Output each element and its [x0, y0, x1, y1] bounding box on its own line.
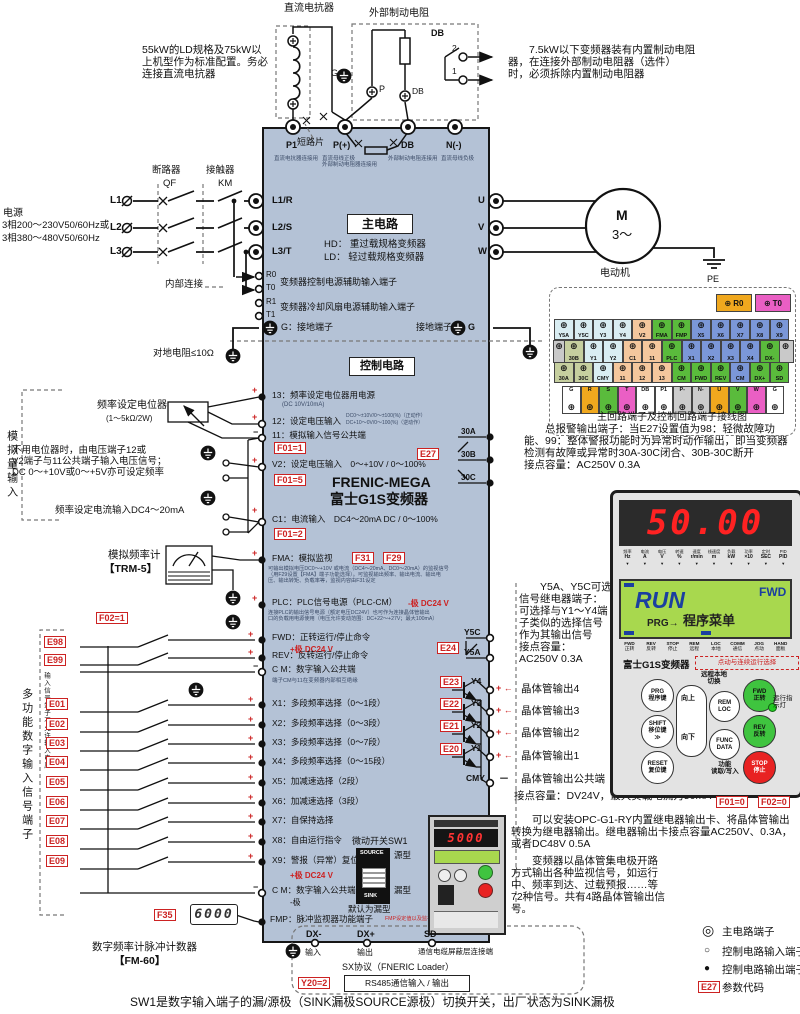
hd-note: HD： 重过载规格变频器 — [324, 240, 426, 251]
svg-text:−: − — [253, 661, 258, 671]
output-terminal-icon — [258, 838, 265, 845]
input-terminal-icon — [487, 635, 494, 642]
svg-text:+: + — [252, 548, 257, 558]
terminal-y3: Y3 — [471, 699, 481, 709]
shift-button[interactable]: SHIFT 移位键 ≫ — [641, 715, 674, 748]
sw1-sink-type: 漏型 — [394, 886, 411, 896]
code-e98: E98 — [44, 636, 66, 648]
terminal-12-sub2: DC+10～0V/0～100(%)（逆动作） — [346, 421, 423, 427]
terminal-30a: 30A — [461, 427, 476, 436]
keypad-unit: 线速度m▼ — [706, 549, 723, 566]
code-e01: E01 — [46, 698, 68, 710]
code-f02-1: F02=1 — [96, 612, 128, 624]
output-terminal-icon — [258, 759, 265, 766]
cmy-polarity: － — [499, 774, 509, 786]
km-name: 接触器 — [206, 166, 235, 177]
digital-input-label: X6：加减速选择（3段） — [272, 797, 364, 807]
terminal-cell: ⊕30C — [574, 362, 594, 383]
sd-shield-label: 通信电缆屏蔽层连接端 — [418, 948, 493, 957]
keypad-status-item: COMM通信 — [727, 641, 748, 653]
code-e24: E24 — [437, 642, 459, 654]
main-terminal-icon — [249, 245, 263, 259]
terminal-cmy: CMY — [466, 774, 485, 784]
strip-r0: ⊕R0 — [716, 294, 752, 312]
input-terminal-icon — [487, 655, 494, 662]
input-terminal-icon — [364, 940, 371, 947]
terminal-cell: ⊕CMY — [593, 362, 613, 383]
rs485-label: RS485通信输入 / 输出 — [344, 975, 470, 992]
svg-text:−: − — [253, 882, 258, 892]
terminal-dx-minus: DX- — [306, 929, 322, 939]
fma-sub: 可输出模拟电压DC0～+10V 或电流（DC4～20mA、DC0～20mA）的监… — [268, 567, 449, 585]
polarity-arrow: + ← — [496, 705, 513, 715]
pplus-caption: 直流母线正极 外部制动电阻器连接用 — [322, 156, 377, 169]
terminal-cell: N-⊕ — [692, 386, 711, 414]
terminal-cell: ⊕Y4 — [613, 319, 633, 340]
terminal-cell: ⊕X3 — [721, 340, 741, 363]
input-terminal-icon — [487, 754, 494, 761]
p1-caption: 直流电抗器连接用 — [274, 156, 318, 162]
legend-input-label: 控制电路输入端子 — [722, 946, 800, 958]
digital-input-label: X5：加减速选择（2段） — [272, 777, 364, 787]
terminal-y2: Y2 — [471, 721, 481, 731]
terminal-cell: S⊕ — [599, 386, 618, 414]
output-terminal-icon — [258, 918, 265, 925]
code-e27: E27 — [417, 448, 439, 460]
svg-text:+: + — [248, 772, 253, 782]
updown-control[interactable]: 向上 向下 — [676, 685, 707, 757]
terminal-cell: ⊕X9 — [770, 319, 790, 340]
terminal-cell: ⊕X8 — [750, 319, 770, 340]
prg-button[interactable]: PRG 程序键 — [641, 679, 674, 712]
sw1-source-label: SOURCE — [360, 850, 384, 856]
code-f01-1: F01=1 — [274, 442, 306, 454]
code-f01-2: F01=2 — [274, 528, 306, 540]
pe-label: PE — [707, 274, 719, 284]
terminal-r0: R0 — [266, 270, 276, 279]
mini-display: 5000 — [434, 829, 498, 847]
remloc-button[interactable]: REM LOC — [709, 691, 740, 722]
output-terminal-icon — [258, 721, 265, 728]
earth-ground-icon — [201, 446, 216, 461]
down-button[interactable]: 向下 — [681, 734, 695, 742]
keypad-unit: 定时SEC▼ — [757, 549, 774, 566]
input-terminal-icon — [259, 421, 266, 428]
dx-in-label: 输入 — [305, 948, 321, 957]
terminal-cell: R⊕ — [581, 386, 600, 414]
output-terminal-icon — [258, 654, 265, 661]
terminal-cell: ⊕REV — [711, 362, 731, 383]
ground-right-g: G — [468, 322, 475, 332]
keypad-unit: 电流A▼ — [636, 549, 653, 566]
terminal-13-label: 13：频率设定电位器用电源 — [272, 391, 375, 401]
earth-ground-icon — [201, 491, 216, 506]
source-connection-icon — [122, 247, 132, 257]
screw-terminal-icon — [367, 87, 377, 97]
keypad-lcd: RUN FWD PRG→ 程序菜单 — [619, 579, 792, 639]
terminal-11-label: 11：模拟输入信号公共端 — [272, 431, 366, 441]
terminal-cell: ⊕X7 — [730, 319, 750, 340]
svg-text:+: + — [252, 455, 257, 465]
input-terminal-icon: ○ — [704, 945, 710, 957]
terminal-cell: ⊕PLC — [662, 340, 682, 363]
motor-m: M — [616, 207, 628, 223]
sx-protocol-label: SX协议（FNERIC Loader） — [342, 962, 454, 972]
output-terminal-icon — [486, 479, 493, 486]
keypad-status-item: LOC本地 — [705, 641, 726, 653]
keypad-unit: 负载kW▼ — [723, 549, 740, 566]
svg-text:+: + — [252, 412, 257, 422]
terminal-cell: T⊕ — [618, 386, 637, 414]
svg-text:+: + — [248, 811, 253, 821]
input-terminal-icon — [259, 890, 266, 897]
code-e06: E06 — [46, 796, 68, 808]
keypad-unit: 频率Hz▼ — [619, 549, 636, 566]
earth-ground-icon — [226, 349, 241, 364]
code-f01-5: F01=5 — [274, 474, 306, 486]
terminal-cell: P-⊕ — [673, 386, 692, 414]
svg-text:+: + — [252, 593, 257, 603]
output-terminal-icon — [258, 779, 265, 786]
terminal-cell: V⊕ — [729, 386, 748, 414]
input-terminal-icon — [429, 940, 436, 947]
meter-label: 模拟频率计 — [108, 549, 161, 561]
code-icon: E27 — [698, 981, 720, 993]
main-terminal-icon — [489, 194, 503, 208]
terminal-u: U — [478, 196, 485, 207]
sw1-source-type: 源型 — [394, 851, 411, 861]
stop-button[interactable]: STOP 停止 — [743, 751, 776, 784]
input-terminal-icon — [259, 435, 266, 442]
terminal-cell: DB⊕ — [636, 386, 655, 414]
input-terminal-icon — [312, 940, 319, 947]
ext-brake-label: 外部制动电阻 — [369, 8, 429, 20]
terminal-nminus: N(-) — [446, 140, 462, 150]
lcd-fwd: FWD — [759, 586, 786, 600]
power-title: 电源 — [3, 208, 23, 220]
terminal-cell: W⊕ — [747, 386, 766, 414]
terminal-cell: ⊕DX+ — [750, 362, 770, 383]
code-e09: E09 — [46, 855, 68, 867]
footer-note: SW1是数字输入端子的漏/源极（SINK漏极SOURCE源极）切换开关，出厂状态… — [130, 996, 615, 1010]
terminal-cm-label: C M：数字输入公共端 — [272, 665, 356, 675]
code-e23: E23 — [440, 676, 462, 688]
terminal-30b: 30B — [461, 450, 476, 459]
strip-t0: ⊕T0 — [755, 294, 791, 312]
km-label[interactable]: KM — [218, 179, 232, 190]
code-f01-0: F01=0 — [716, 796, 748, 808]
digital-input-label: X4：多段频率选择（0～15段） — [272, 757, 390, 767]
svg-text:−: − — [253, 427, 258, 437]
code-e05: E05 — [46, 776, 68, 788]
terminal-db: DB — [401, 140, 414, 150]
power-spec2: 3相380～480V50/60Hz — [2, 234, 100, 245]
lcd-run: RUN — [635, 587, 685, 613]
open-collector-note: 变频器以晶体管集电极开路 方式输出各种监视信号，如运行 中、频率到达、过载预报…… — [511, 855, 665, 915]
sw1-switch[interactable]: SOURCE SINK — [356, 848, 390, 904]
terminal-cell: ⊕CM — [672, 362, 692, 383]
svg-text:+: + — [252, 505, 257, 515]
earth-ground-icon — [523, 345, 538, 360]
input-terminal-icon — [487, 731, 494, 738]
digital-input-label: X7：自保持选择 — [272, 816, 333, 826]
code-e07: E07 — [46, 815, 68, 827]
dc-reactor-note: 55kW的LD规格及75kW以 上机型作为标准配置。务必 连接直流电抗器 — [142, 44, 268, 80]
source-connection-icon — [122, 223, 132, 233]
brake-db-label: DB — [412, 87, 424, 97]
funcdata-label: 功能 读取/写入 — [711, 761, 739, 776]
terminal-cell: ⊕X5 — [691, 319, 711, 340]
transistor-output-label: 晶体管输出2 — [521, 727, 579, 739]
svg-text:+: + — [248, 752, 253, 762]
terminal-y5c: Y5C — [464, 628, 481, 638]
db-contact-2[interactable]: 2 — [452, 44, 457, 54]
counter-label: 数字频率计脉冲计数器 — [92, 941, 197, 953]
terminal-cell: ⊕Y2 — [603, 340, 623, 363]
keypad-status-item: STOP停止 — [662, 641, 683, 653]
terminal-rev-label: REV：反转运行/停止命令 — [272, 651, 368, 661]
up-button[interactable]: 向上 — [681, 695, 695, 703]
svg-text:+: + — [248, 831, 253, 841]
terminal-cell: P1⊕ — [655, 386, 674, 414]
terminal-cell: ⊕X6 — [711, 319, 731, 340]
code-e20: E20 — [440, 743, 462, 755]
terminal-plc-label: PLC：PLC信号电源（PLC-CM） — [272, 598, 397, 608]
output-terminal-icon — [486, 433, 493, 440]
brand-line1: FRENIC-MEGA — [332, 474, 431, 490]
terminal-l1r: L1/R — [272, 196, 293, 207]
earth-ground-icon — [337, 69, 352, 84]
polarity-arrow: + ← — [496, 727, 513, 737]
code-f31: F31 — [352, 552, 374, 564]
output-terminal-icon — [258, 818, 265, 825]
main-terminal-icon — [489, 221, 503, 235]
power-spec1: 3相200～230V50/60Hz或 — [2, 221, 109, 232]
output-terminal-icon — [258, 556, 265, 563]
opc-note: 可以安装OPC-G1-RY内置继电器输出卡、将晶体管输出 转换为继电器输出。继电… — [511, 814, 792, 850]
terminal-cell: ⊕DX- — [760, 340, 780, 363]
terminal-c1-label: C1：电流输入 DC4～20mA DC / 0～100% — [272, 515, 438, 525]
qf-label[interactable]: QF — [163, 179, 176, 190]
output-terminal-icon — [258, 636, 265, 643]
terminal-cell: G⊕ — [766, 386, 785, 414]
terminal-12-sub1: DC0～±10V/0～±100(%)（正动作） — [346, 414, 426, 420]
screw-terminal-icon — [288, 99, 298, 109]
input-terminal-icon — [256, 273, 263, 280]
svg-text:+: + — [248, 851, 253, 861]
keypad-panel: 50.00 频率Hz▼电流A▼电压V▼转速%▼速度r/min▼线速度m▼负载kW… — [610, 490, 800, 798]
lcd-prg: PRG→ — [647, 618, 679, 630]
keypad-status-item: REM远程 — [684, 641, 705, 653]
main-terminal-icon — [249, 194, 263, 208]
brake-p-label: P — [379, 84, 385, 94]
sw1-slider[interactable] — [362, 868, 386, 888]
sw1-default: 默认为漏型 — [348, 905, 391, 915]
counter-model: 【FM-60】 — [114, 955, 165, 967]
code-f02-0: F02=0 — [758, 796, 790, 808]
motor-phase: 3～ — [612, 228, 632, 243]
input-terminal-icon — [256, 313, 263, 320]
code-f29: F29 — [383, 552, 405, 564]
input-terminal-icon — [487, 687, 494, 694]
terminal-fmp-label: FMP：脉冲监视器功能端子 — [270, 915, 373, 925]
main-terminal-icon — [338, 120, 352, 134]
terminal-cell: ⊕FMA — [652, 319, 672, 340]
terminal-t1: T1 — [266, 310, 275, 319]
terminal-y1: Y1 — [471, 744, 481, 754]
screw-terminal-icon — [400, 91, 410, 101]
source-connection-icon — [122, 196, 132, 206]
ground-left-label: G：接地端子 — [281, 322, 333, 332]
brake-note: 7.5kW以下变频器装有内置制动电阻 器，在连接外部制动电阻器（选件） 时，必须… — [508, 44, 695, 80]
lcd-menu: 程序菜单 — [683, 614, 735, 629]
ground-resistance-label: 对地电阻≤10Ω — [153, 349, 214, 360]
main-terminal-icon — [489, 245, 503, 259]
input-terminal-icon — [487, 709, 494, 716]
plc-sub: 连接PLC的输出信号电源（额定电压DC24V）也可作为连接晶体管输出 口的负载用… — [268, 611, 438, 623]
output-terminal-icon — [258, 393, 265, 400]
ground-right-label: 接地端子 — [416, 322, 452, 332]
output-terminal-icon — [258, 799, 265, 806]
terminal-cell: ⊕FMP — [672, 319, 692, 340]
brake-g-label: G — [331, 68, 338, 78]
meter-model: 【TRM-5】 — [104, 563, 157, 575]
svg-text:+: + — [248, 792, 253, 802]
polarity-arrow: + ← — [496, 750, 513, 760]
code-e21: E21 — [440, 720, 462, 732]
terminal-cell: ⊕Y3 — [593, 319, 613, 340]
terminal-cell: ⊕C1 — [623, 340, 643, 363]
output-terminal-icon — [486, 456, 493, 463]
run-led-label: 运行指 示灯 — [773, 695, 793, 710]
terminal-l2s: L2/S — [272, 223, 292, 234]
ld-note: LD： 轻过载规格变频器 — [324, 253, 424, 264]
terminal-cell: U⊕ — [710, 386, 729, 414]
control-circuit-title: 控制电路 — [349, 357, 415, 376]
keypad-brand: 富士G1S变频器 — [623, 661, 690, 672]
earth-ground-icon — [263, 321, 278, 336]
pot-sub: (1～5kΩ/2W) — [106, 414, 152, 423]
output-terminal-icon: ● — [704, 963, 710, 975]
pulse-display: 6000 — [190, 904, 238, 925]
terminal-cell: ⊕X1 — [682, 340, 702, 363]
code-e99: E99 — [44, 654, 66, 666]
legend-code-label: 参数代码 — [722, 982, 764, 994]
main-terminal-icon — [448, 120, 462, 134]
earth-ground-icon — [189, 683, 204, 698]
legend-main-label: 主电路端子 — [722, 926, 775, 938]
transistor-output-label: 晶体管输出1 — [521, 750, 579, 762]
output-terminal-icon — [258, 740, 265, 747]
no-pot-note: 不用电位器时，由电压端子12或 V2端子与11公共端子输入电压信号； DC 0～… — [12, 446, 166, 479]
terminal-cell: ⊕Y1 — [584, 340, 604, 363]
db-contact-1[interactable]: 1 — [452, 67, 457, 77]
current-input-note: 频率设定电流输入DC4～20mA — [55, 506, 184, 517]
sw1-title: 微动开关SW1 — [352, 836, 408, 846]
input-terminal-icon — [487, 780, 494, 787]
cm2-polarity: -极 — [290, 898, 301, 907]
l3-label: L3 — [110, 246, 122, 258]
code-e08: E08 — [46, 835, 68, 847]
terminal-r1: R1 — [266, 297, 276, 306]
l1-label: L1 — [110, 195, 122, 207]
code-e22: E22 — [440, 698, 462, 710]
terminal-t0: T0 — [266, 283, 275, 292]
funcdata-button[interactable]: FUNC DATA — [709, 729, 740, 760]
nminus-caption: 直流母线负极 — [441, 156, 474, 162]
terminal-p1: P1 — [286, 140, 297, 150]
svg-text:+: + — [248, 694, 253, 704]
code-f35: F35 — [154, 909, 176, 921]
cm-sub: 端子CM与11在变频器内部相互绝缘 — [272, 678, 358, 684]
terminal-l3t: L3/T — [272, 247, 292, 258]
screw-terminal-icon — [288, 36, 298, 46]
keypad-status-item: FWD正转 — [619, 641, 640, 653]
sw1-sink-label: SINK — [364, 893, 377, 899]
fan-power-note: 变频器冷却风扇电源辅助输入端子 — [280, 302, 415, 312]
polarity-arrow: + ← — [496, 683, 513, 693]
terminal-cell: ⊕30A — [554, 362, 574, 383]
terminal-v2-label: V2：设定电压输入 0～+10V / 0～100% — [272, 460, 426, 470]
main-circuit-title: 主电路 — [347, 214, 413, 234]
input-terminal-icon — [256, 286, 263, 293]
terminal-cell: ⊕13 — [652, 362, 672, 383]
keypad-display: 50.00 — [619, 500, 792, 546]
terminal-dx-plus: DX+ — [357, 929, 375, 939]
terminal-cell: ⊕X4 — [740, 340, 760, 363]
motor-label: 电动机 — [600, 268, 630, 280]
terminal-cell: ⊕30B — [564, 340, 584, 363]
cmy-label: 晶体管输出公共端 — [521, 773, 605, 785]
transistor-output-label: 晶体管输出4 — [521, 683, 579, 695]
keypad-units: 频率Hz▼电流A▼电压V▼转速%▼速度r/min▼线速度m▼负载kW▼功率×10… — [619, 549, 792, 575]
main-terminal-icon — [401, 120, 415, 134]
keypad-unit: 功率×10▼ — [740, 549, 757, 566]
terminal-13-sub: (DC 10V/10mA) — [282, 402, 324, 409]
relay-note: Y5A、Y5C可选 信号继电器端子： 可选择与Y1～Y4端 子类似的选择信号 作… — [519, 581, 612, 665]
terminal-v: V — [478, 223, 484, 234]
terminal-12-label: 12：设定电压输入 — [272, 417, 341, 427]
terminal-cell: ⊕FWD — [691, 362, 711, 383]
code-e02: E02 — [46, 718, 68, 730]
earth-ground-icon — [286, 944, 301, 959]
terminal-cell: G⊕ — [562, 386, 581, 414]
terminal-cell: ⊕12 — [632, 362, 652, 383]
terminal-cell: ⊕11 — [642, 340, 662, 363]
svg-text:+: + — [248, 629, 253, 639]
keypad-status-item: REV反转 — [641, 641, 662, 653]
pot-label: 频率设定电位器 — [97, 400, 167, 412]
terminal-sd: SD — [424, 929, 437, 939]
db-contact-label: DB — [431, 28, 444, 38]
rev-button[interactable]: REV 反转 — [743, 715, 776, 748]
main-terminal-icon — [249, 221, 263, 235]
digital-input-label: X1：多段频率选择（0～1段） — [272, 699, 385, 709]
strip-caption: 主回路端子及控制回路端子接线图 — [552, 412, 792, 424]
reset-button[interactable]: RESET 复位键 — [641, 751, 674, 784]
mini-inverter-photo: 5000 — [428, 815, 506, 935]
keypad-unit: 转速%▼ — [671, 549, 688, 566]
output-terminal-icon — [258, 601, 265, 608]
svg-text:+: + — [252, 385, 257, 395]
input-terminal-icon — [259, 669, 266, 676]
earth-ground-icon — [451, 321, 466, 336]
keypad-unit: 电压V▼ — [654, 549, 671, 566]
terminal-w: W — [478, 247, 487, 258]
main-terminal-icon: ◎ — [702, 922, 714, 938]
code-y20: Y20=2 — [298, 977, 330, 989]
terminal-cell: ⊕Y5C — [574, 319, 594, 340]
